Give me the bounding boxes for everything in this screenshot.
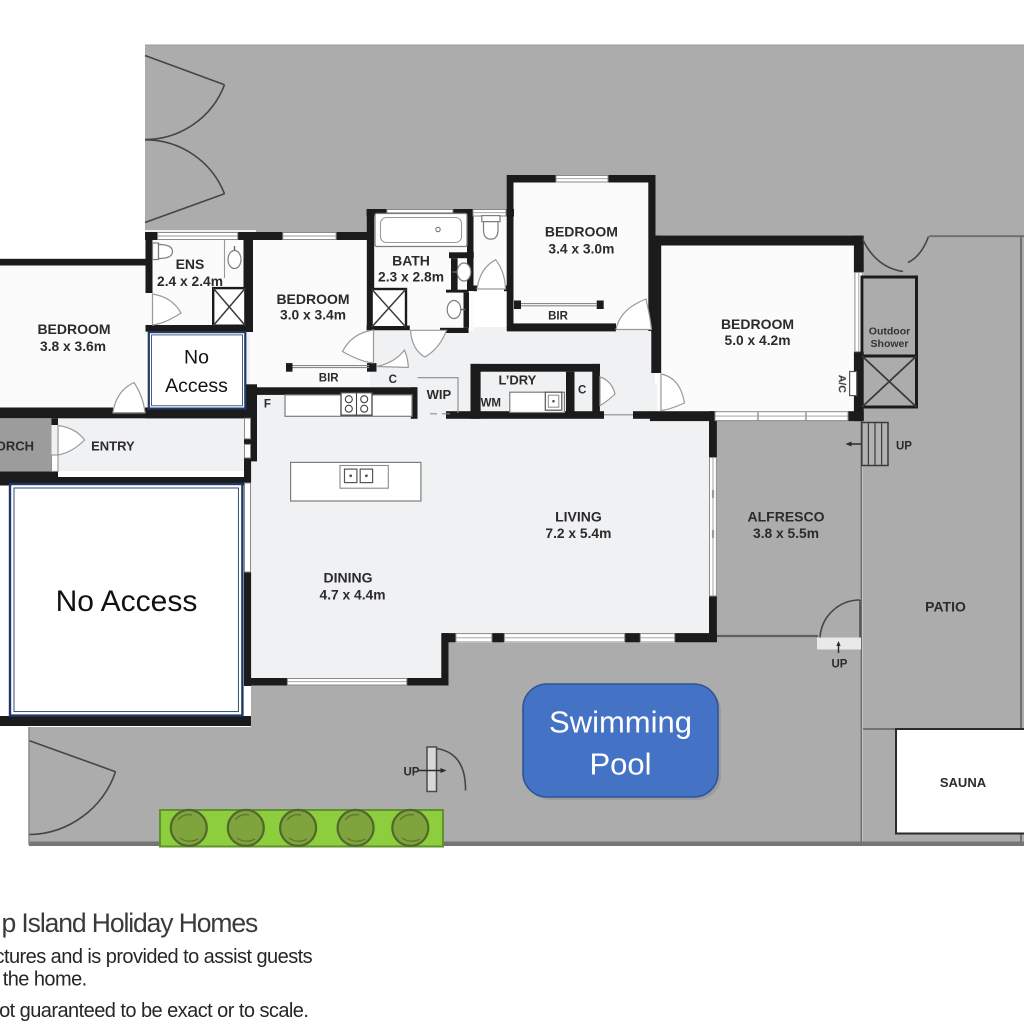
svg-text:No Access: No Access	[56, 585, 198, 618]
svg-text:3.0 x 3.4m: 3.0 x 3.4m	[280, 308, 346, 323]
svg-text:BEDROOM: BEDROOM	[545, 224, 618, 240]
svg-text:UP: UP	[896, 441, 912, 453]
svg-text:ENS: ENS	[176, 256, 205, 272]
svg-text:4.7 x 4.4m: 4.7 x 4.4m	[320, 587, 386, 602]
svg-text:C: C	[578, 385, 586, 397]
svg-text:WM: WM	[481, 397, 501, 409]
svg-text:L’DRY: L’DRY	[498, 373, 536, 388]
svg-text:2.3 x 2.8m: 2.3 x 2.8m	[378, 269, 444, 284]
svg-text:3.4 x 3.0m: 3.4 x 3.0m	[548, 242, 614, 257]
svg-text:DINING: DINING	[324, 569, 373, 585]
svg-text:UP: UP	[832, 659, 848, 671]
svg-text:BIR: BIR	[319, 372, 340, 384]
svg-text:7.2 x 5.4m: 7.2 x 5.4m	[545, 526, 611, 541]
svg-text:WIP: WIP	[427, 387, 452, 402]
svg-text:p Island Holiday Homes: p Island Holiday Homes	[2, 908, 259, 938]
svg-text:UP: UP	[404, 766, 420, 778]
svg-text:A/C: A/C	[836, 375, 848, 394]
svg-text:3.8 x 3.6m: 3.8 x 3.6m	[40, 339, 106, 354]
svg-text:ctures and is provided to assi: ctures and is provided to assist guests	[0, 946, 313, 968]
svg-text:Access: Access	[165, 375, 228, 397]
svg-text:BEDROOM: BEDROOM	[276, 291, 349, 307]
svg-text:not guaranteed to be exact or: not guaranteed to be exact or to scale.	[0, 1000, 308, 1022]
svg-text:PATIO: PATIO	[925, 598, 966, 614]
svg-text:BEDROOM: BEDROOM	[721, 316, 794, 332]
svg-text:PORCH: PORCH	[0, 439, 34, 454]
svg-text:BEDROOM: BEDROOM	[37, 321, 110, 337]
svg-text:LIVING: LIVING	[555, 509, 602, 525]
svg-text:ENTRY: ENTRY	[91, 439, 135, 454]
svg-text:Swimming: Swimming	[549, 705, 692, 740]
svg-text:5.0 x 4.2m: 5.0 x 4.2m	[725, 333, 791, 348]
svg-text:ALFRESCO: ALFRESCO	[748, 509, 825, 525]
svg-text:3.8 x 5.5m: 3.8 x 5.5m	[753, 526, 819, 541]
svg-text:No: No	[184, 347, 209, 369]
svg-text:Shower: Shower	[871, 338, 909, 350]
svg-text:BIR: BIR	[548, 311, 569, 323]
svg-text:C: C	[389, 374, 397, 386]
svg-text:BATH: BATH	[392, 252, 430, 268]
svg-text:the home.: the home.	[3, 969, 87, 991]
svg-text:Outdoor: Outdoor	[869, 326, 910, 338]
svg-text:Pool: Pool	[589, 747, 651, 782]
svg-text:2.4 x 2.4m: 2.4 x 2.4m	[157, 274, 223, 289]
svg-text:SAUNA: SAUNA	[940, 775, 987, 790]
svg-text:F: F	[264, 398, 271, 410]
